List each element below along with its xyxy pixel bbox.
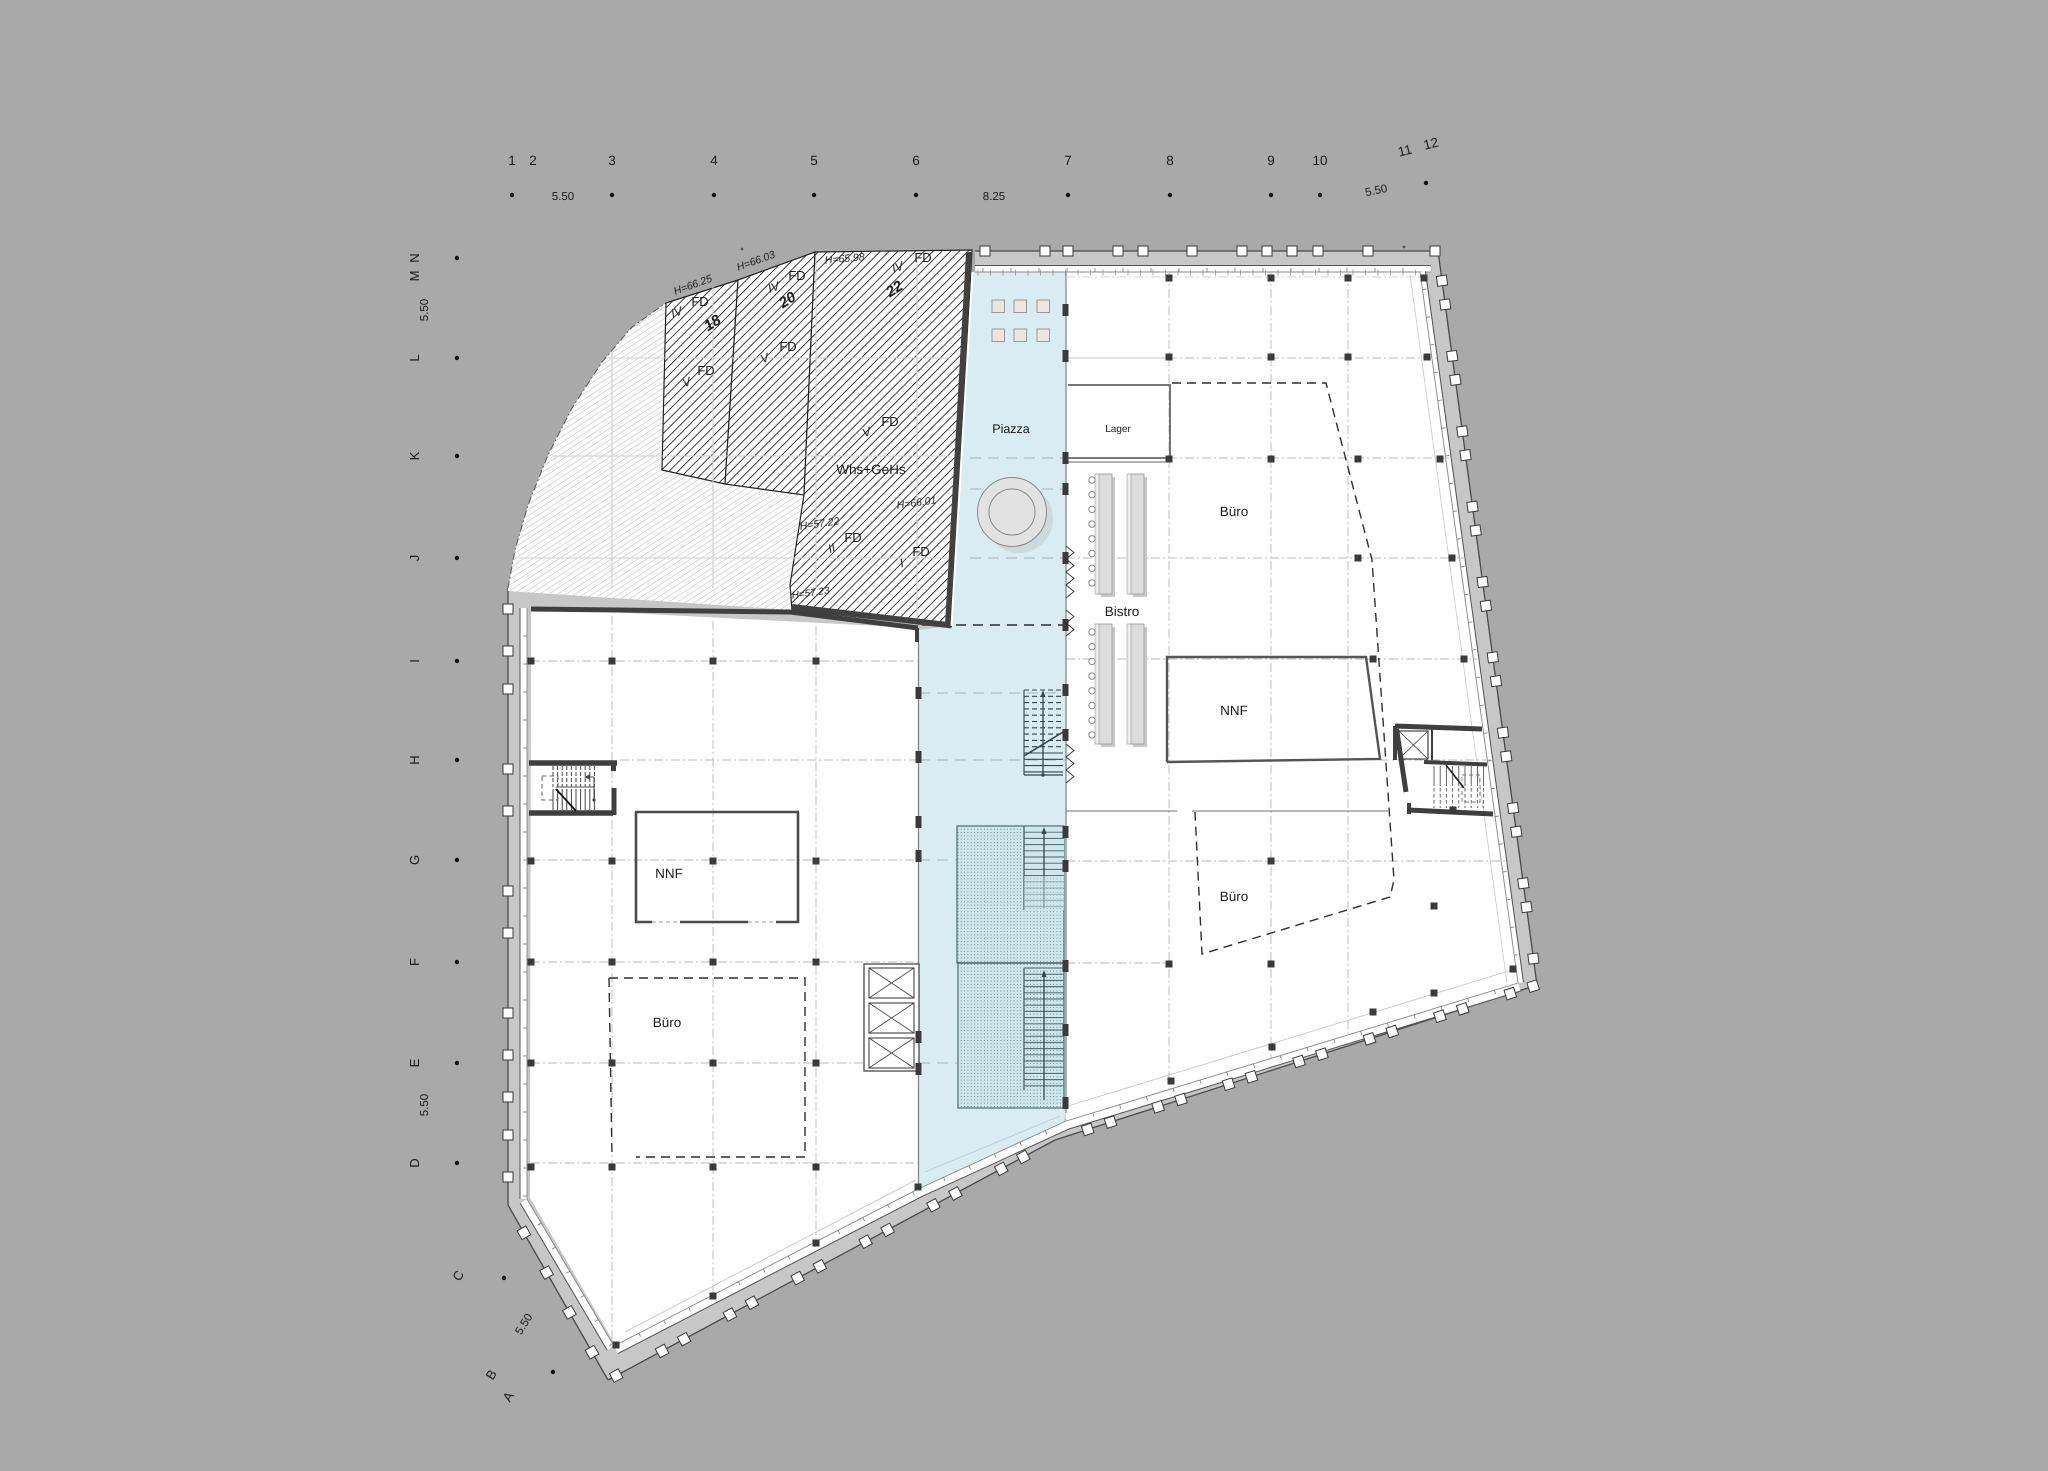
svg-text:10: 10 (1312, 153, 1327, 168)
svg-text:NNF: NNF (1220, 703, 1248, 718)
svg-text:8: 8 (1166, 153, 1174, 168)
svg-text:1: 1 (508, 153, 516, 168)
svg-text:4: 4 (710, 153, 718, 168)
svg-text:3: 3 (608, 153, 616, 168)
svg-text:Lager: Lager (1105, 424, 1131, 435)
svg-text:Bistro: Bistro (1105, 604, 1140, 619)
svg-text:L: L (407, 354, 422, 361)
svg-text:H: H (407, 755, 422, 764)
svg-text:Büro: Büro (1220, 889, 1249, 904)
svg-text:Büro: Büro (653, 1015, 682, 1030)
svg-text:FD: FD (779, 339, 796, 354)
svg-text:J: J (407, 555, 422, 562)
svg-text:5.50: 5.50 (552, 191, 574, 203)
svg-text:FD: FD (691, 294, 708, 309)
svg-text:N: N (407, 253, 422, 262)
svg-text:E: E (407, 1058, 422, 1067)
svg-text:G: G (407, 855, 422, 865)
svg-text:D: D (407, 1158, 422, 1167)
svg-text:F: F (407, 958, 422, 966)
svg-text:I: I (407, 659, 422, 663)
svg-text:Piazza: Piazza (992, 422, 1030, 436)
svg-text:5.50: 5.50 (419, 299, 431, 321)
svg-text:6: 6 (912, 153, 920, 168)
svg-text:FD: FD (788, 268, 805, 283)
svg-text:FD: FD (912, 544, 929, 559)
svg-text:7: 7 (1064, 153, 1072, 168)
svg-text:FD: FD (844, 530, 861, 545)
svg-text:FD: FD (697, 363, 714, 378)
svg-text:9: 9 (1267, 153, 1275, 168)
svg-text:5.50: 5.50 (419, 1094, 431, 1116)
svg-text:2: 2 (529, 153, 537, 168)
svg-text:FD: FD (881, 414, 898, 429)
svg-text:8.25: 8.25 (983, 191, 1005, 203)
svg-text:FD: FD (914, 250, 931, 265)
svg-text:5: 5 (810, 153, 818, 168)
svg-text:K: K (407, 451, 422, 460)
svg-text:NNF: NNF (655, 866, 683, 881)
svg-text:Whs+GeHs: Whs+GeHs (836, 462, 906, 477)
svg-text:M: M (407, 271, 422, 282)
svg-text:Büro: Büro (1220, 504, 1249, 519)
